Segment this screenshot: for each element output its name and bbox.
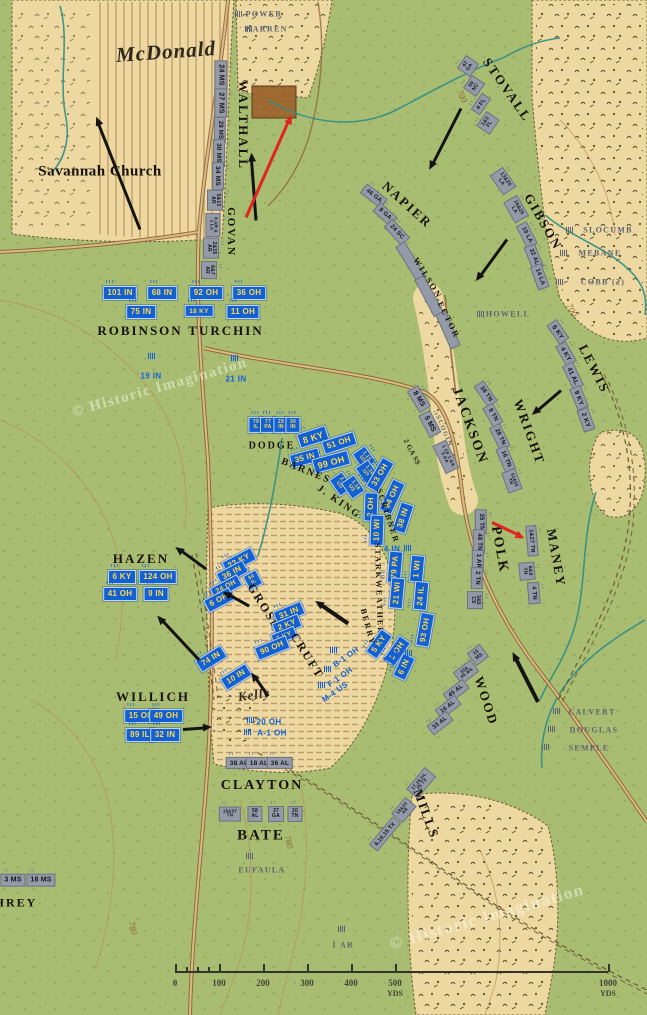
scale-tick xyxy=(608,964,610,972)
scale-label-400: 400 xyxy=(344,978,358,988)
scale-label-1000: 1000 xyxy=(599,978,617,988)
scale-label-300: 300 xyxy=(300,978,314,988)
scale-label-100: 100 xyxy=(212,978,226,988)
scale-label-500: 500 xyxy=(388,978,402,988)
scale-tick xyxy=(263,964,265,972)
scale-layer: 0100200300400500YDS1000YDS xyxy=(0,0,647,1015)
scale-tick xyxy=(175,964,177,972)
scale-unit-label: YDS xyxy=(387,989,403,998)
scale-tick xyxy=(351,964,353,972)
scale-minor-tick xyxy=(197,967,199,972)
scale-tick xyxy=(219,964,221,972)
scale-unit-label: YDS xyxy=(600,989,616,998)
scale-bar-line xyxy=(175,971,608,973)
scale-minor-tick xyxy=(186,967,188,972)
scale-label-200: 200 xyxy=(256,978,270,988)
scale-label-0: 0 xyxy=(173,978,178,988)
scale-tick xyxy=(395,964,397,972)
scale-tick xyxy=(307,964,309,972)
battle-map: McDonaldSavannah ChurchPOWERWARREN24 MS2… xyxy=(0,0,647,1015)
scale-minor-tick xyxy=(208,967,210,972)
